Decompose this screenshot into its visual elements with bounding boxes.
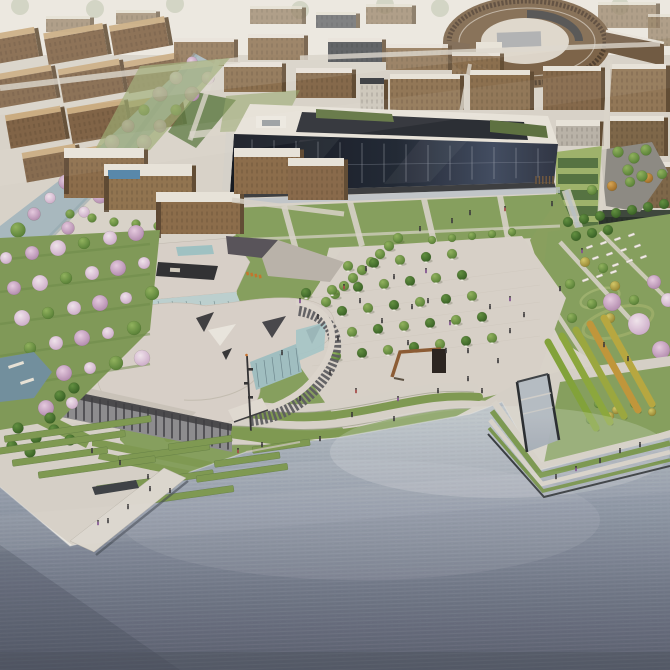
photo-sheen xyxy=(0,0,670,670)
rendering-stage xyxy=(0,0,670,670)
aerial-rendering xyxy=(0,0,670,670)
